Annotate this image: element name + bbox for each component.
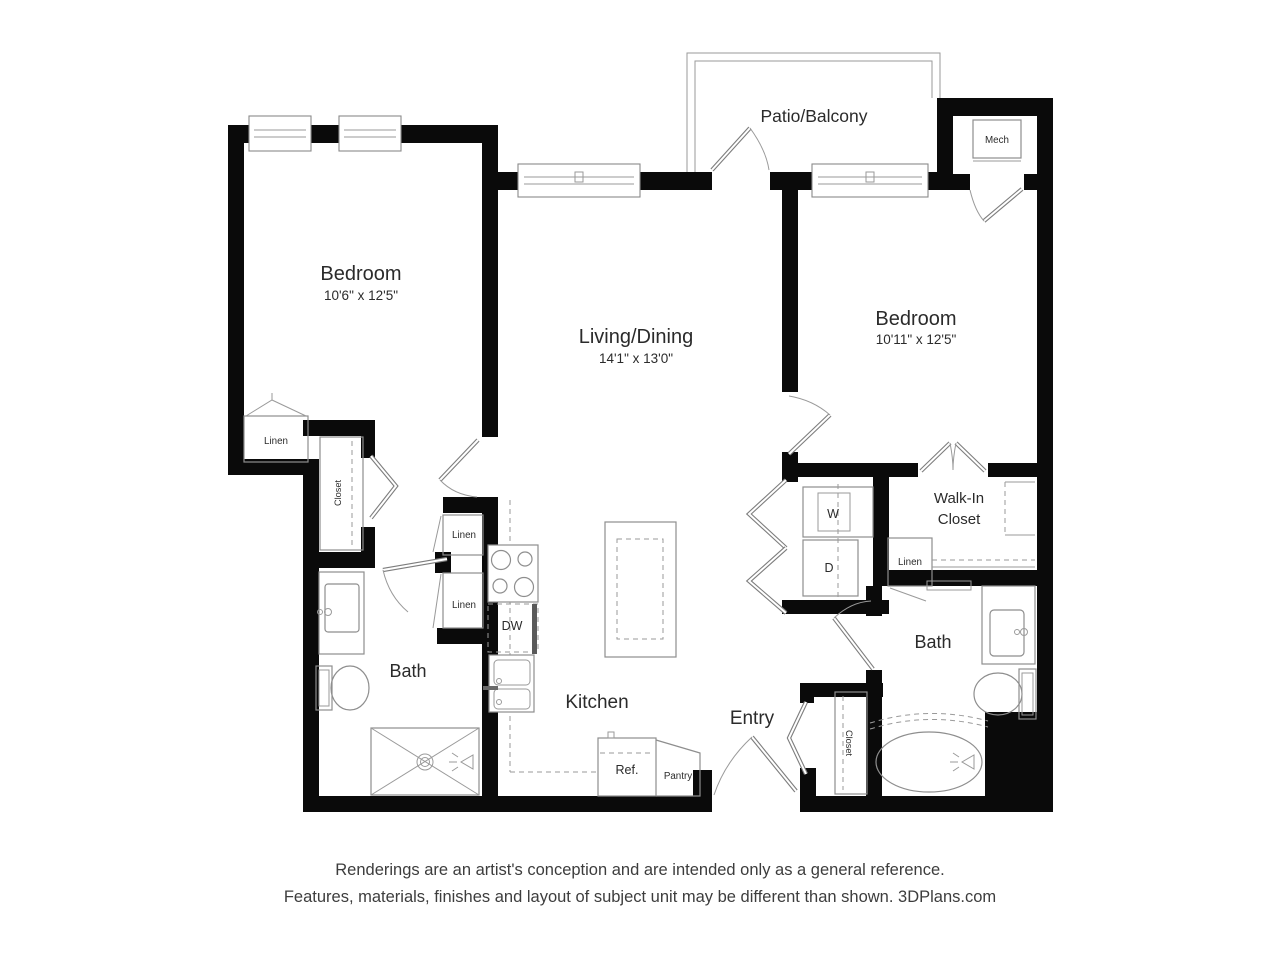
dishwasher-label: DW xyxy=(502,619,523,633)
wall-segment xyxy=(937,98,953,174)
mech-door xyxy=(970,189,1022,221)
disclaimer-line-1: Renderings are an artist's conception an… xyxy=(335,861,944,879)
bedroom1-window-2 xyxy=(339,116,401,151)
storage xyxy=(244,120,1035,794)
wall-segment xyxy=(228,125,244,475)
mech-label: Mech xyxy=(985,135,1009,146)
labels: Patio/Balcony Bedroom 10'6" x 12'5" Bedr… xyxy=(264,106,1009,782)
wall-segment xyxy=(693,770,712,812)
doors xyxy=(371,128,1022,795)
wall-segment xyxy=(782,172,798,392)
living-dims: 14'1" x 13'0" xyxy=(599,351,673,366)
wall-segment xyxy=(437,628,492,644)
laundry-linen-label: Linen xyxy=(898,557,922,568)
bedroom2-door xyxy=(789,396,830,454)
wall-segment xyxy=(782,463,918,477)
kitchen-fixtures xyxy=(483,500,700,796)
wall-segment xyxy=(800,683,814,703)
bath2-vanity-sink xyxy=(982,586,1035,664)
walkin-label-line1: Walk-In xyxy=(934,490,984,507)
bedroom2-label: Bedroom xyxy=(875,308,956,330)
hall-linen-lower-label: Linen xyxy=(452,600,476,611)
kitchen-island xyxy=(605,522,676,657)
wall-segment xyxy=(443,497,492,513)
floor-plan-drawing: Patio/Balcony Bedroom 10'6" x 12'5" Bedr… xyxy=(0,0,1280,960)
entry-label: Entry xyxy=(730,708,775,729)
kitchen-label: Kitchen xyxy=(565,692,628,713)
walkin-label-line2: Closet xyxy=(938,511,981,528)
hall-linen-lower-door xyxy=(433,574,441,628)
wall-segment xyxy=(1024,174,1053,190)
windows xyxy=(249,116,928,197)
bedroom1-label: Bedroom xyxy=(320,263,401,285)
hall-closet-label: Closet xyxy=(333,480,343,506)
wall-segment xyxy=(800,768,816,812)
wall-segment xyxy=(940,174,970,190)
pantry-label: Pantry xyxy=(664,771,692,782)
hall-linen-upper-label: Linen xyxy=(452,530,476,541)
wall-segment xyxy=(482,125,498,437)
hall-linen-upper-door xyxy=(433,516,441,552)
dryer-label: D xyxy=(824,561,833,575)
wall-segment xyxy=(303,552,373,568)
wall-segment xyxy=(937,98,1053,116)
bath1-vanity-sink xyxy=(318,572,365,654)
bedroom1-linen-closet xyxy=(244,393,308,462)
floor-plan-page: Patio/Balcony Bedroom 10'6" x 12'5" Bedr… xyxy=(0,0,1280,960)
patio-door xyxy=(712,128,769,170)
disclaimer-line-2: Features, materials, finishes and layout… xyxy=(284,888,996,906)
entry-door xyxy=(714,737,796,795)
bath2-toilet xyxy=(974,669,1036,719)
bedroom1-window-1 xyxy=(249,116,311,151)
kitchen-sink xyxy=(483,655,534,712)
bedroom1-dims: 10'6" x 12'5" xyxy=(324,288,398,303)
bath2-bathtub xyxy=(870,713,988,792)
wall-segment xyxy=(985,712,1037,796)
entry-closet-bifold-doors xyxy=(789,702,806,774)
patio-label: Patio/Balcony xyxy=(760,106,867,126)
bath2-label: Bath xyxy=(914,632,951,652)
hall-closet-bifold-doors xyxy=(371,456,396,518)
footer: Renderings are an artist's conception an… xyxy=(284,861,996,906)
bath1-label: Bath xyxy=(389,661,426,681)
bedroom1-linen-label: Linen xyxy=(264,436,288,447)
wall-segment xyxy=(303,796,712,812)
bedroom2-dims: 10'11" x 12'5" xyxy=(876,332,957,347)
laundry-linen-door xyxy=(890,588,926,601)
bedroom2-window xyxy=(812,164,928,197)
bedroom1-door xyxy=(440,440,478,497)
wall-segment xyxy=(873,463,889,586)
wall-segment xyxy=(303,459,319,812)
bath1-shower xyxy=(371,728,479,795)
living-label: Living/Dining xyxy=(579,326,694,348)
washer-label: W xyxy=(827,507,839,521)
refrigerator-label: Ref. xyxy=(616,763,639,777)
living-window xyxy=(518,164,640,197)
wall-segment xyxy=(988,463,1053,477)
laundry-bifold-doors xyxy=(749,480,786,613)
entry-closet-label: Closet xyxy=(844,730,854,756)
bath1-toilet xyxy=(316,666,369,710)
wall-segment xyxy=(1037,98,1053,812)
laundry-fixtures xyxy=(803,484,873,598)
stove xyxy=(488,545,538,602)
walkin-closet-double-doors xyxy=(921,443,985,471)
wall-segment xyxy=(800,796,1053,812)
